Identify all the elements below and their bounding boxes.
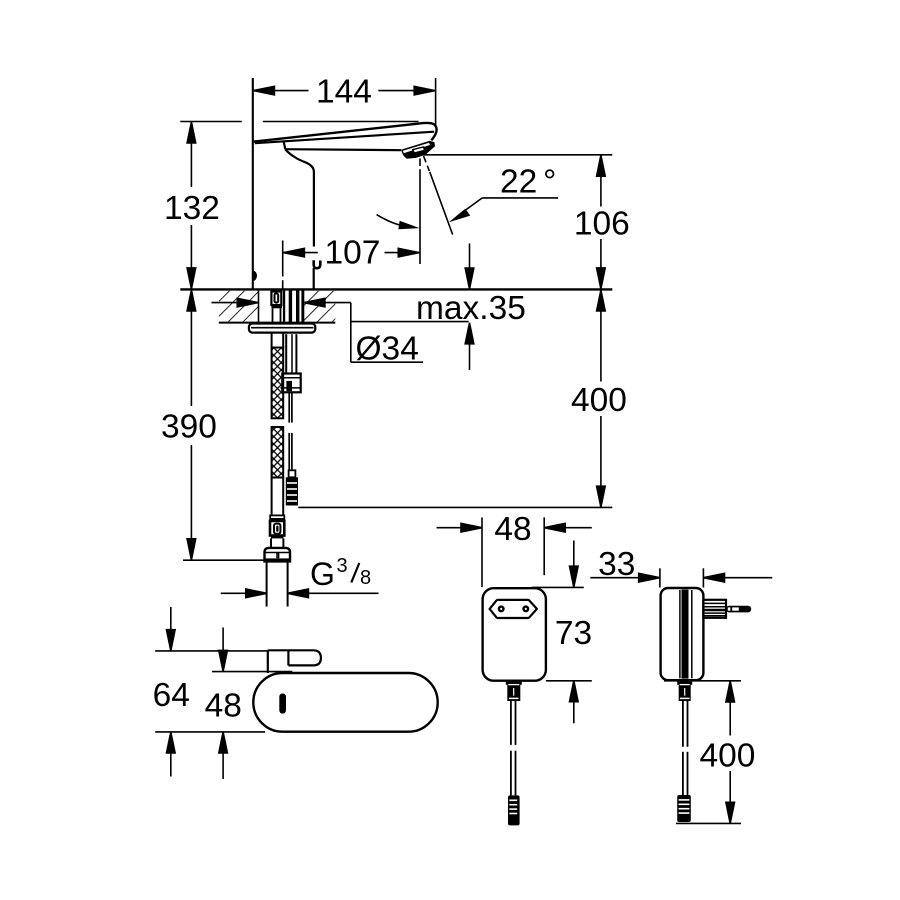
svg-text:107: 107: [325, 235, 381, 272]
svg-text:64: 64: [153, 677, 190, 714]
svg-text:33: 33: [598, 546, 635, 583]
svg-text:3: 3: [337, 555, 348, 577]
svg-text:8: 8: [360, 567, 371, 589]
svg-text:106: 106: [574, 206, 630, 243]
svg-text:48: 48: [494, 511, 531, 548]
svg-text:G: G: [310, 556, 335, 592]
svg-text:390: 390: [161, 409, 217, 446]
svg-text:Ø34: Ø34: [356, 331, 419, 368]
svg-text:°: °: [543, 164, 556, 201]
svg-text:max.35: max.35: [416, 290, 526, 327]
svg-text:400: 400: [571, 382, 627, 419]
svg-text:73: 73: [555, 615, 592, 652]
svg-text:48: 48: [205, 688, 242, 725]
svg-text:22: 22: [500, 164, 537, 201]
svg-text:144: 144: [316, 73, 372, 110]
svg-text:132: 132: [164, 190, 220, 227]
svg-text:400: 400: [700, 737, 756, 774]
